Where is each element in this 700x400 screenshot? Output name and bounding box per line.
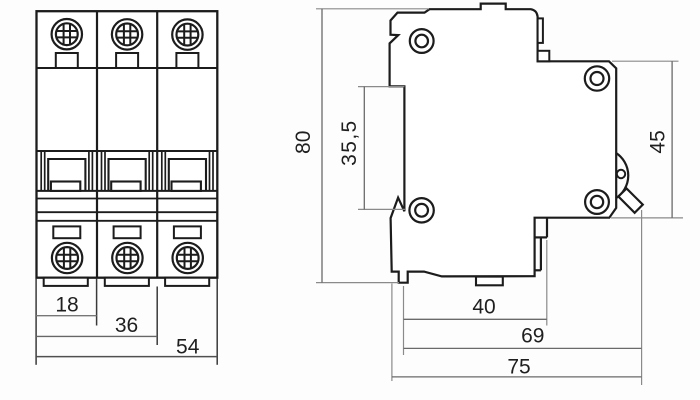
svg-text:75: 75 [507,355,530,378]
svg-text:80: 80 [292,131,315,154]
svg-text:40: 40 [472,296,495,319]
svg-text:69: 69 [521,325,544,348]
svg-text:36: 36 [115,314,138,337]
svg-text:18: 18 [55,294,78,317]
svg-text:45: 45 [646,130,669,153]
svg-text:35,5: 35,5 [338,119,361,165]
svg-text:54: 54 [176,335,200,358]
